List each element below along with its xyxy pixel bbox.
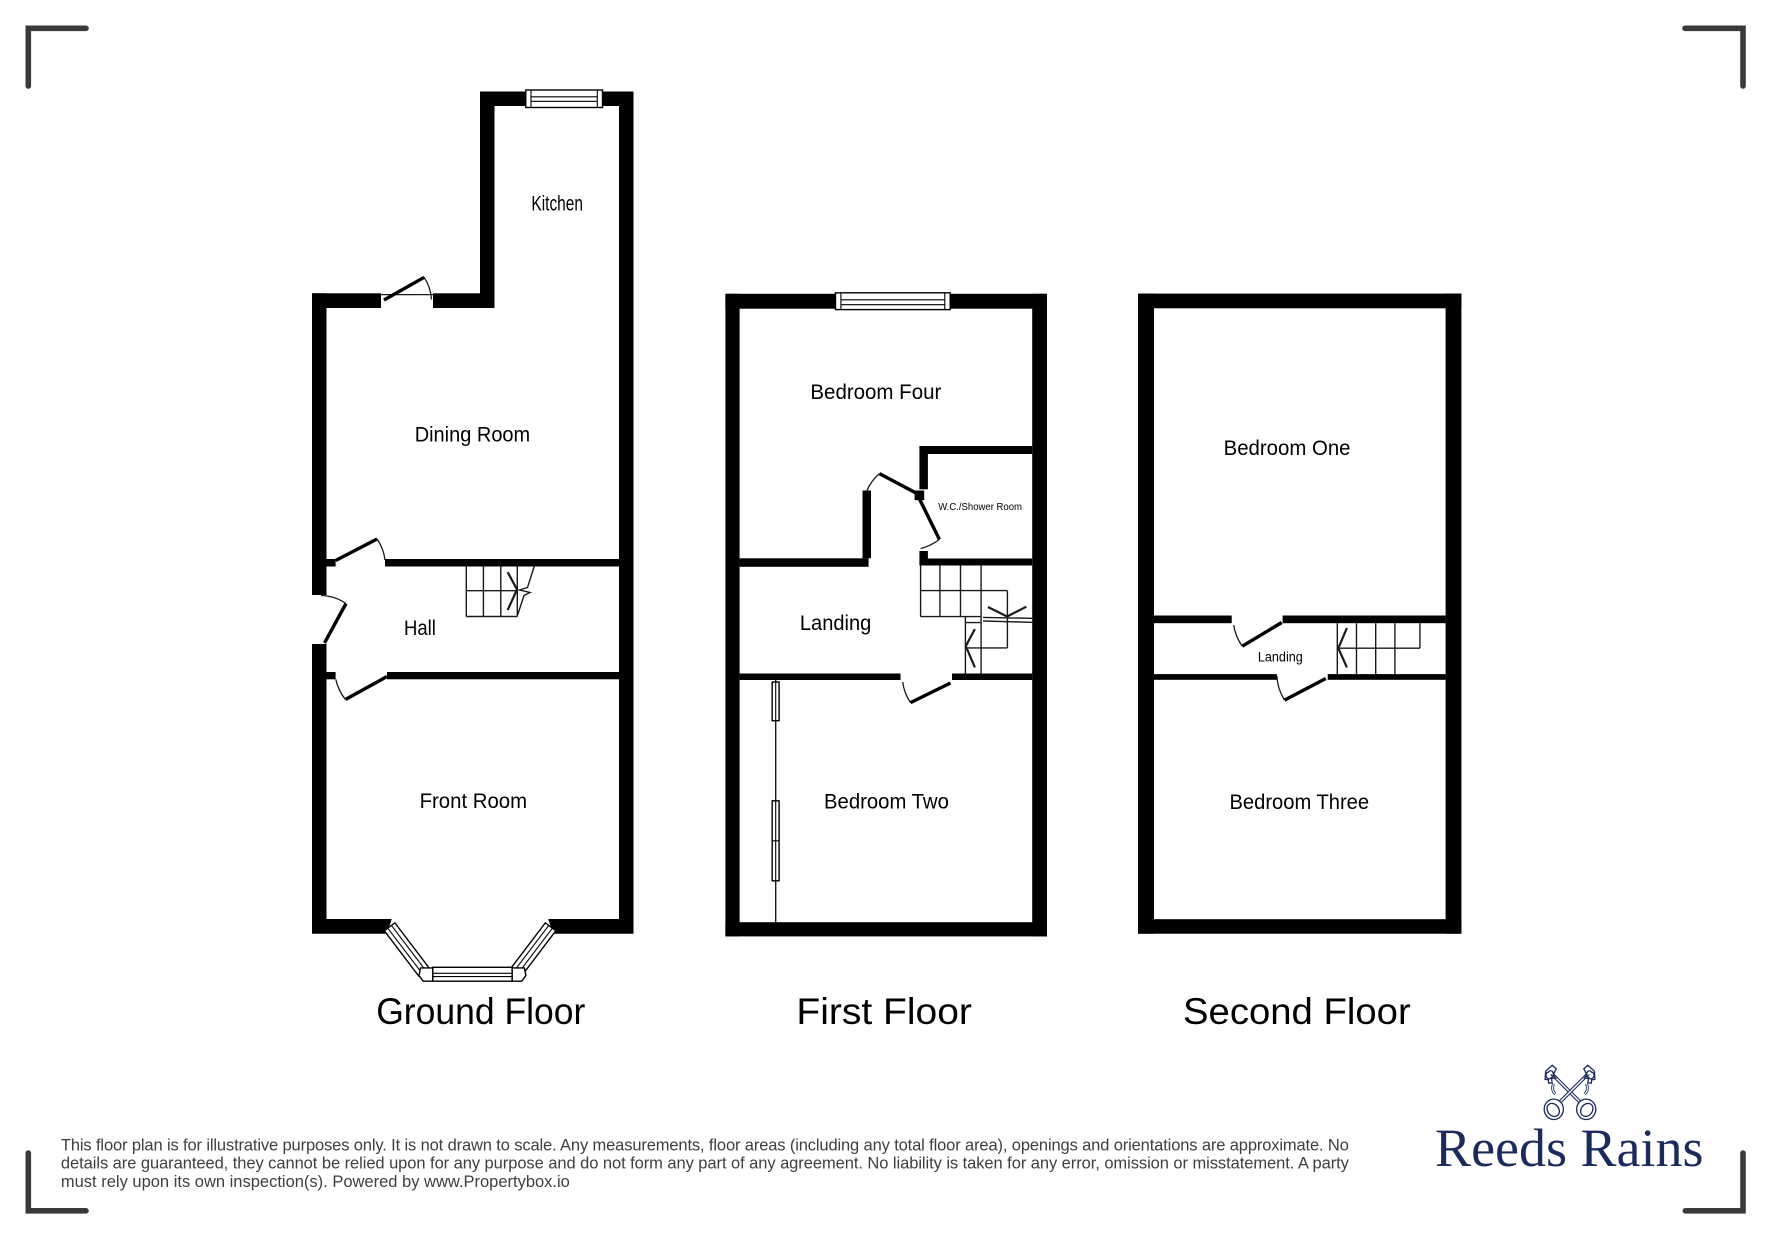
svg-text:Dining Room: Dining Room (415, 423, 531, 447)
svg-text:Ground Floor: Ground Floor (376, 991, 585, 1032)
svg-text:First Floor: First Floor (796, 991, 972, 1032)
svg-text:Bedroom Four: Bedroom Four (810, 380, 941, 404)
svg-text:Hall: Hall (404, 616, 436, 640)
svg-text:Landing: Landing (800, 611, 871, 635)
svg-text:must rely upon its own inspect: must rely upon its own inspection(s). Po… (61, 1173, 570, 1191)
svg-text:Second Floor: Second Floor (1183, 991, 1411, 1032)
svg-text:W.C./Shower Room: W.C./Shower Room (938, 501, 1022, 513)
svg-text:Bedroom One: Bedroom One (1224, 436, 1351, 460)
svg-text:Front Room: Front Room (420, 789, 527, 813)
svg-text:Landing: Landing (1258, 650, 1303, 665)
svg-text:Bedroom Three: Bedroom Three (1230, 790, 1370, 814)
svg-text:Reeds Rains: Reeds Rains (1435, 1118, 1703, 1178)
svg-text:Bedroom Two: Bedroom Two (824, 789, 949, 813)
svg-text:This floor plan is for illustr: This floor plan is for illustrative purp… (61, 1136, 1349, 1154)
svg-text:Kitchen: Kitchen (531, 191, 583, 215)
svg-text:details are guaranteed, they c: details are guaranteed, they cannot be r… (61, 1155, 1350, 1173)
